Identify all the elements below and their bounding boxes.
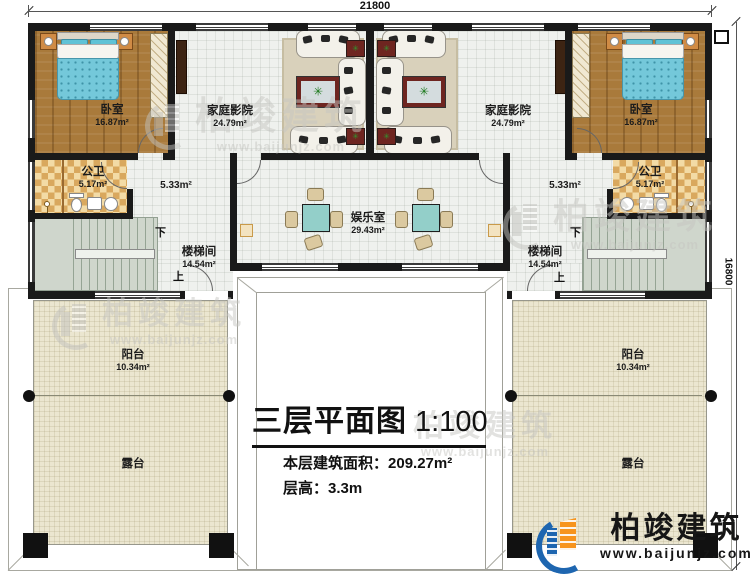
- floor-area-value: 209.27m²: [388, 455, 452, 472]
- tv-cabinet-left: [176, 40, 187, 94]
- floor-balcony-terrace-left: [33, 300, 228, 545]
- room-area: 14.54m²: [514, 259, 576, 270]
- window: [28, 100, 35, 138]
- chair: [413, 234, 433, 252]
- coffee-table: [296, 76, 340, 108]
- game-table-set: [395, 188, 455, 250]
- table: [412, 204, 440, 232]
- wall-segment: [607, 189, 613, 213]
- speaker-cabinet: [377, 40, 396, 57]
- room-name: 公卫: [620, 165, 680, 179]
- room-name: 露台: [598, 457, 668, 471]
- plan-title: 三层平面图: [252, 396, 407, 440]
- window: [560, 291, 645, 299]
- room-label-stairwell-right: 楼梯间 14.54m²: [514, 245, 576, 271]
- wall-segment: [180, 291, 185, 299]
- washbasin: [104, 197, 118, 211]
- room-area: 24.79m²: [470, 118, 546, 129]
- column-dot: [23, 390, 35, 402]
- room-area: 16.87m²: [77, 117, 147, 128]
- window: [28, 162, 35, 210]
- eave-line: [8, 288, 9, 570]
- room-area: 16.87m²: [606, 117, 676, 128]
- wall-segment: [645, 291, 712, 299]
- bed-blanket: [57, 58, 119, 100]
- floor-plan: 卧室 16.87m² 卧室 16.87m² 家庭影院 24.79m² 家庭影院 …: [0, 0, 750, 585]
- wall-segment: [230, 153, 237, 271]
- room-label-terrace-right: 露台: [598, 457, 668, 471]
- side-table: [240, 224, 253, 237]
- room-name: 娱乐室: [333, 211, 403, 225]
- wall-segment: [28, 291, 95, 299]
- wardrobe-left: [150, 33, 168, 118]
- room-label-entertainment: 娱乐室 29.43m²: [333, 211, 403, 237]
- room-label-theater-left: 家庭影院 24.79m²: [192, 104, 268, 130]
- plan-scale: 1:100: [415, 406, 488, 439]
- wall-segment: [602, 153, 712, 160]
- table: [302, 204, 330, 232]
- room-name: 阳台: [98, 348, 168, 362]
- speaker-cabinet: [346, 40, 365, 57]
- room-label-bath-left: 公卫 5.17m²: [63, 165, 123, 191]
- wardrobe-right: [572, 33, 590, 118]
- column: [23, 533, 48, 558]
- floor-area-label: 本层建筑面积：: [283, 455, 388, 472]
- wall-segment: [228, 291, 233, 299]
- dimension-top-value: 21800: [340, 0, 410, 12]
- column: [507, 533, 532, 558]
- window: [705, 162, 712, 210]
- wall-segment: [28, 213, 133, 219]
- coffee-table: [402, 76, 446, 108]
- window: [308, 23, 356, 31]
- column-dot: [505, 390, 517, 402]
- floor-height-line: 层高：3.3m: [283, 477, 362, 498]
- column-dot: [705, 390, 717, 402]
- window: [196, 23, 268, 31]
- room-label-hall-left: 5.33m²: [146, 180, 206, 193]
- wall-segment: [565, 31, 572, 160]
- stair-up-label: 上: [173, 268, 184, 284]
- column: [209, 533, 234, 558]
- room-label-bedroom-left: 卧室 16.87m²: [77, 103, 147, 129]
- chair: [440, 211, 453, 228]
- wall-segment: [163, 153, 175, 160]
- wall-segment: [607, 213, 712, 219]
- side-table: [488, 224, 501, 237]
- bed-left: [40, 31, 135, 101]
- wall-segment: [565, 153, 577, 160]
- room-label-stairwell-left: 楼梯间 14.54m²: [168, 245, 230, 271]
- room-name: 卧室: [606, 103, 676, 117]
- room-label-theater-right: 家庭影院 24.79m²: [470, 104, 546, 130]
- floor-height-value: 3.3m: [328, 480, 362, 497]
- floor-balcony-terrace-right: [512, 300, 707, 545]
- bath-fixtures-right: [608, 193, 698, 213]
- corner-pier: [714, 30, 729, 44]
- floor-area-line: 本层建筑面积：209.27m²: [283, 452, 452, 473]
- wall-segment: [507, 291, 512, 299]
- sink: [87, 197, 102, 210]
- theater-furniture-left: [282, 30, 364, 152]
- speaker-cabinet: [377, 128, 396, 145]
- chair: [417, 188, 434, 201]
- brand-logo-icon: [536, 512, 594, 572]
- stair-down-label: 下: [570, 224, 581, 240]
- toilet: [656, 198, 667, 212]
- room-name: 露台: [98, 457, 168, 471]
- room-label-balcony-right: 阳台 10.34m²: [598, 348, 668, 374]
- window: [705, 222, 712, 282]
- room-name: 家庭影院: [192, 104, 268, 118]
- room-name: 楼梯间: [168, 245, 230, 259]
- dimension-line-right: [736, 22, 737, 570]
- stair-rail-right: [587, 249, 667, 259]
- room-name: 楼梯间: [514, 245, 576, 259]
- room-area: 5.33m²: [535, 180, 595, 193]
- toilet: [71, 198, 82, 212]
- column-dot: [223, 390, 235, 402]
- room-area: 5.17m²: [63, 179, 123, 190]
- wall-segment: [366, 31, 374, 160]
- lamp: [610, 37, 619, 46]
- wall-segment: [338, 263, 402, 271]
- eave-line: [8, 288, 28, 289]
- window: [95, 291, 180, 299]
- speaker-cabinet: [346, 128, 365, 145]
- room-name: 卧室: [77, 103, 147, 117]
- room-label-terrace-left: 露台: [98, 457, 168, 471]
- wall-segment: [127, 189, 133, 213]
- wall-segment: [230, 263, 262, 271]
- balcony-terrace-divider-right: [512, 395, 702, 396]
- title-block: 三层平面图 1:100: [252, 396, 486, 448]
- lamp: [120, 37, 129, 46]
- brand-name: 柏竣建筑: [610, 512, 742, 545]
- room-name: 家庭影院: [470, 104, 546, 118]
- window: [262, 263, 338, 271]
- floor-height-label: 层高：: [283, 480, 328, 497]
- dimension-right-value: 16800: [723, 242, 734, 302]
- chair: [285, 211, 298, 228]
- room-area: 5.33m²: [146, 180, 206, 193]
- chair: [307, 188, 324, 201]
- window: [90, 23, 162, 31]
- window: [705, 100, 712, 138]
- room-area: 24.79m²: [192, 118, 268, 129]
- room-name: 公卫: [63, 165, 123, 179]
- window: [28, 222, 35, 282]
- room-area: 10.34m²: [98, 362, 168, 373]
- room-label-hall-right: 5.33m²: [535, 180, 595, 193]
- dimension-ext: [711, 5, 712, 17]
- window: [578, 23, 650, 31]
- window: [472, 23, 544, 31]
- wall-segment: [168, 31, 175, 160]
- stair-down-label: 下: [155, 224, 166, 240]
- room-area: 29.43m²: [333, 225, 403, 236]
- bath-fixtures-left: [42, 193, 132, 213]
- bed-blanket: [622, 58, 684, 100]
- room-label-balcony-left: 阳台 10.34m²: [98, 348, 168, 374]
- stair-rail-left: [75, 249, 155, 259]
- room-area: 10.34m²: [598, 362, 668, 373]
- wall-segment: [503, 153, 510, 271]
- balcony-terrace-divider-left: [33, 395, 223, 396]
- window: [402, 263, 478, 271]
- sofa-chaise: [338, 58, 366, 126]
- chair: [303, 234, 323, 252]
- room-label-bedroom-right: 卧室 16.87m²: [606, 103, 676, 129]
- stair-up-label: 上: [554, 269, 565, 285]
- sofa-chaise: [376, 58, 404, 126]
- room-name: 阳台: [598, 348, 668, 362]
- room-area: 5.17m²: [620, 179, 680, 190]
- wall-segment: [261, 153, 366, 160]
- brand-url: www.baijunjz.com: [600, 545, 750, 561]
- room-label-bath-right: 公卫 5.17m²: [620, 165, 680, 191]
- wall-segment: [28, 153, 138, 160]
- window: [384, 23, 432, 31]
- bed-right: [606, 31, 701, 101]
- washbasin: [620, 197, 634, 211]
- dimension-ext: [28, 5, 29, 17]
- lamp: [44, 37, 53, 46]
- wall-segment: [478, 263, 510, 271]
- brand-logo: 柏竣建筑 www.baijunjz.com: [536, 512, 750, 572]
- theater-furniture-right: [376, 30, 458, 152]
- sink: [639, 197, 654, 210]
- lamp: [686, 37, 695, 46]
- wall-segment: [374, 153, 479, 160]
